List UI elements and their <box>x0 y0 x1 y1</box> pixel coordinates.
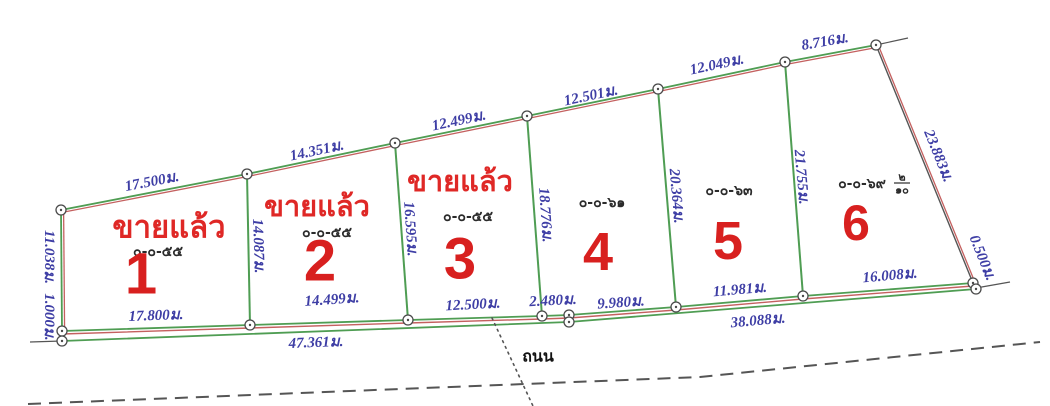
area-label-plot-5: ๐-๐-๖๓ <box>705 183 753 199</box>
area-label-plot-6: ๐-๐-๖๙ <box>838 176 886 192</box>
right-boundary-dark <box>876 45 973 283</box>
vertex-center-dot <box>784 61 786 63</box>
vertex-center-dot <box>675 306 677 308</box>
sold-label-plot-2: ขายแล้ว <box>264 191 370 223</box>
vertex-center-dot <box>60 209 62 211</box>
dimension-label: 21.755ม. <box>791 148 812 205</box>
vertex-center-dot <box>802 295 804 297</box>
plot-number-1: 1 <box>125 242 157 307</box>
dimension-label: 11.038ม. <box>41 230 57 284</box>
land-plot-plan: 17.500ม.14.351ม.12.499ม.12.501ม.12.049ม.… <box>0 0 1050 406</box>
sold-label-plot-1: ขายแล้ว <box>112 210 225 245</box>
plot-number-6: 6 <box>842 195 870 251</box>
vertex-center-dot <box>875 44 877 46</box>
divider-plot1-plot2 <box>247 174 250 325</box>
vertex-center-dot <box>407 319 409 321</box>
dimension-label: 12.500ม. <box>445 296 501 315</box>
left-boundary-red <box>64 210 65 331</box>
vertex-center-dot <box>526 115 528 117</box>
dimension-label: 11.981ม. <box>712 280 767 301</box>
vertex-center-dot <box>568 321 570 323</box>
dimension-label: 17.800ม. <box>128 307 183 325</box>
dimension-label: 23.883ม. <box>920 127 956 185</box>
sold-label-plot-3: ขายแล้ว <box>407 166 513 198</box>
dimension-label: 1.000ม. <box>41 293 57 340</box>
vertex-center-dot <box>975 288 977 290</box>
plot-number-3: 3 <box>444 227 476 292</box>
vertex-center-dot <box>541 315 543 317</box>
plot-number-5: 5 <box>713 211 743 271</box>
vertex-center-dot <box>657 88 659 90</box>
dimension-label: 16.008ม. <box>862 266 918 287</box>
vertex-center-dot <box>246 173 248 175</box>
dimension-label: 14.087ม. <box>249 218 267 273</box>
vertex-center-dot <box>568 314 570 316</box>
area-fraction-numerator: ๒ <box>898 171 905 184</box>
vertex-center-dot <box>249 324 251 326</box>
vertex-center-dot <box>61 330 63 332</box>
survey-plan-canvas: 17.500ม.14.351ม.12.499ม.12.501ม.12.049ม.… <box>0 0 1050 406</box>
area-label-plot-3: ๐-๐-๕๕ <box>443 209 493 225</box>
road-label: ถนน <box>522 347 554 366</box>
area-label-plot-4: ๐-๐-๖๑ <box>579 195 625 211</box>
dimension-label: 9.980ม. <box>597 293 645 312</box>
dimension-label: 18.776ม. <box>535 187 555 243</box>
plot-number-4: 4 <box>583 222 613 282</box>
plot-number-2: 2 <box>304 229 336 294</box>
dimension-label: 14.351ม. <box>288 137 345 164</box>
dimension-label: 2.480ม. <box>528 292 577 311</box>
right-boundary-red <box>879 46 976 284</box>
dimension-label: 47.361ม. <box>287 334 343 352</box>
vertex-center-dot <box>394 142 396 144</box>
left-boundary-green <box>61 210 62 331</box>
vertex-center-dot <box>61 340 63 342</box>
dimension-label: 38.088ม. <box>729 311 786 332</box>
area-fraction-denominator: ๑๐ <box>895 184 909 197</box>
